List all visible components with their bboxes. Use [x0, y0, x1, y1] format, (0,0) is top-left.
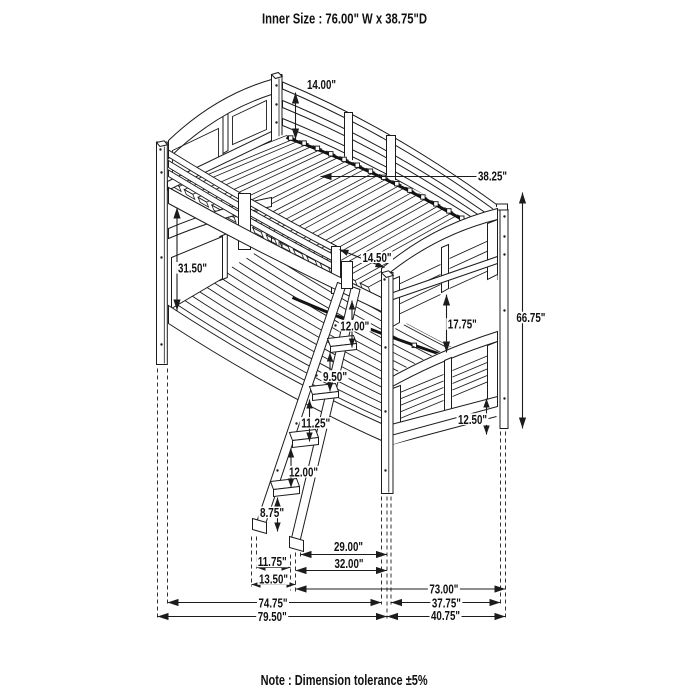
- svg-text:14.00": 14.00": [307, 77, 336, 92]
- svg-text:12.00": 12.00": [340, 318, 369, 333]
- svg-text:17.75": 17.75": [448, 317, 477, 332]
- svg-text:11.75": 11.75": [258, 554, 287, 569]
- svg-text:73.00": 73.00": [429, 582, 458, 597]
- svg-text:66.75": 66.75": [516, 310, 545, 325]
- svg-text:38.25": 38.25": [478, 169, 507, 184]
- svg-text:14.50": 14.50": [363, 250, 392, 265]
- svg-text:11.25": 11.25": [301, 416, 330, 431]
- svg-text:13.50": 13.50": [259, 572, 288, 587]
- svg-text:12.50": 12.50": [458, 412, 487, 427]
- svg-text:32.00": 32.00": [335, 556, 364, 571]
- svg-text:8.75": 8.75": [260, 505, 284, 520]
- svg-text:31.50": 31.50": [178, 261, 207, 276]
- svg-text:29.00": 29.00": [334, 539, 363, 554]
- svg-text:Inner Size : 76.00" W x 38.75: Inner Size : 76.00" W x 38.75"D: [262, 11, 427, 27]
- svg-text:79.50": 79.50": [258, 609, 287, 624]
- svg-text:Note : Dimension tolerance ±5%: Note : Dimension tolerance ±5%: [261, 673, 428, 689]
- svg-text:40.75": 40.75": [431, 608, 460, 623]
- svg-text:12.00": 12.00": [289, 464, 318, 479]
- svg-text:9.50": 9.50": [323, 369, 347, 384]
